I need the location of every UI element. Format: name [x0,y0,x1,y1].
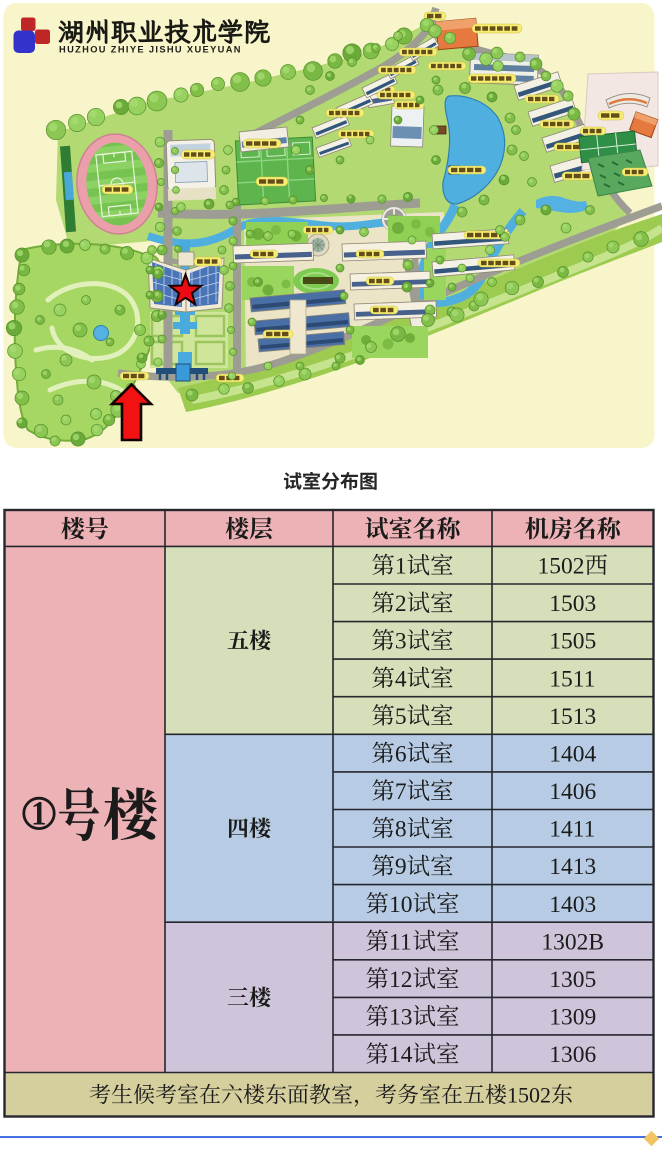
svg-text:9: 9 [395,854,407,880]
svg-text:2: 2 [395,591,407,617]
svg-text:1503: 1503 [549,591,596,617]
svg-text:1406: 1406 [549,779,596,805]
svg-text:8: 8 [395,817,407,843]
svg-text:6: 6 [395,741,407,767]
svg-text:1404: 1404 [549,741,596,767]
svg-text:4: 4 [395,666,407,692]
svg-text:1305: 1305 [549,967,596,993]
svg-text:1309: 1309 [549,1005,596,1031]
svg-text:1502: 1502 [507,1082,551,1107]
svg-text:3: 3 [395,629,407,655]
svg-text:11: 11 [389,929,412,955]
svg-text:1502: 1502 [538,554,585,580]
svg-text:1413: 1413 [549,854,596,880]
svg-text:1: 1 [395,554,407,580]
svg-text:1302B: 1302B [541,929,604,955]
svg-text:1403: 1403 [549,892,596,918]
svg-text:1513: 1513 [549,704,596,730]
svg-text:13: 13 [389,1005,413,1031]
svg-text:10: 10 [389,892,413,918]
svg-text:14: 14 [389,1042,413,1068]
svg-text:1511: 1511 [549,666,595,692]
svg-text:1411: 1411 [549,817,595,843]
svg-text:12: 12 [389,967,413,993]
svg-text:1505: 1505 [549,629,596,655]
svg-text:7: 7 [395,779,407,805]
svg-text:5: 5 [395,704,407,730]
svg-text:1306: 1306 [549,1042,596,1068]
